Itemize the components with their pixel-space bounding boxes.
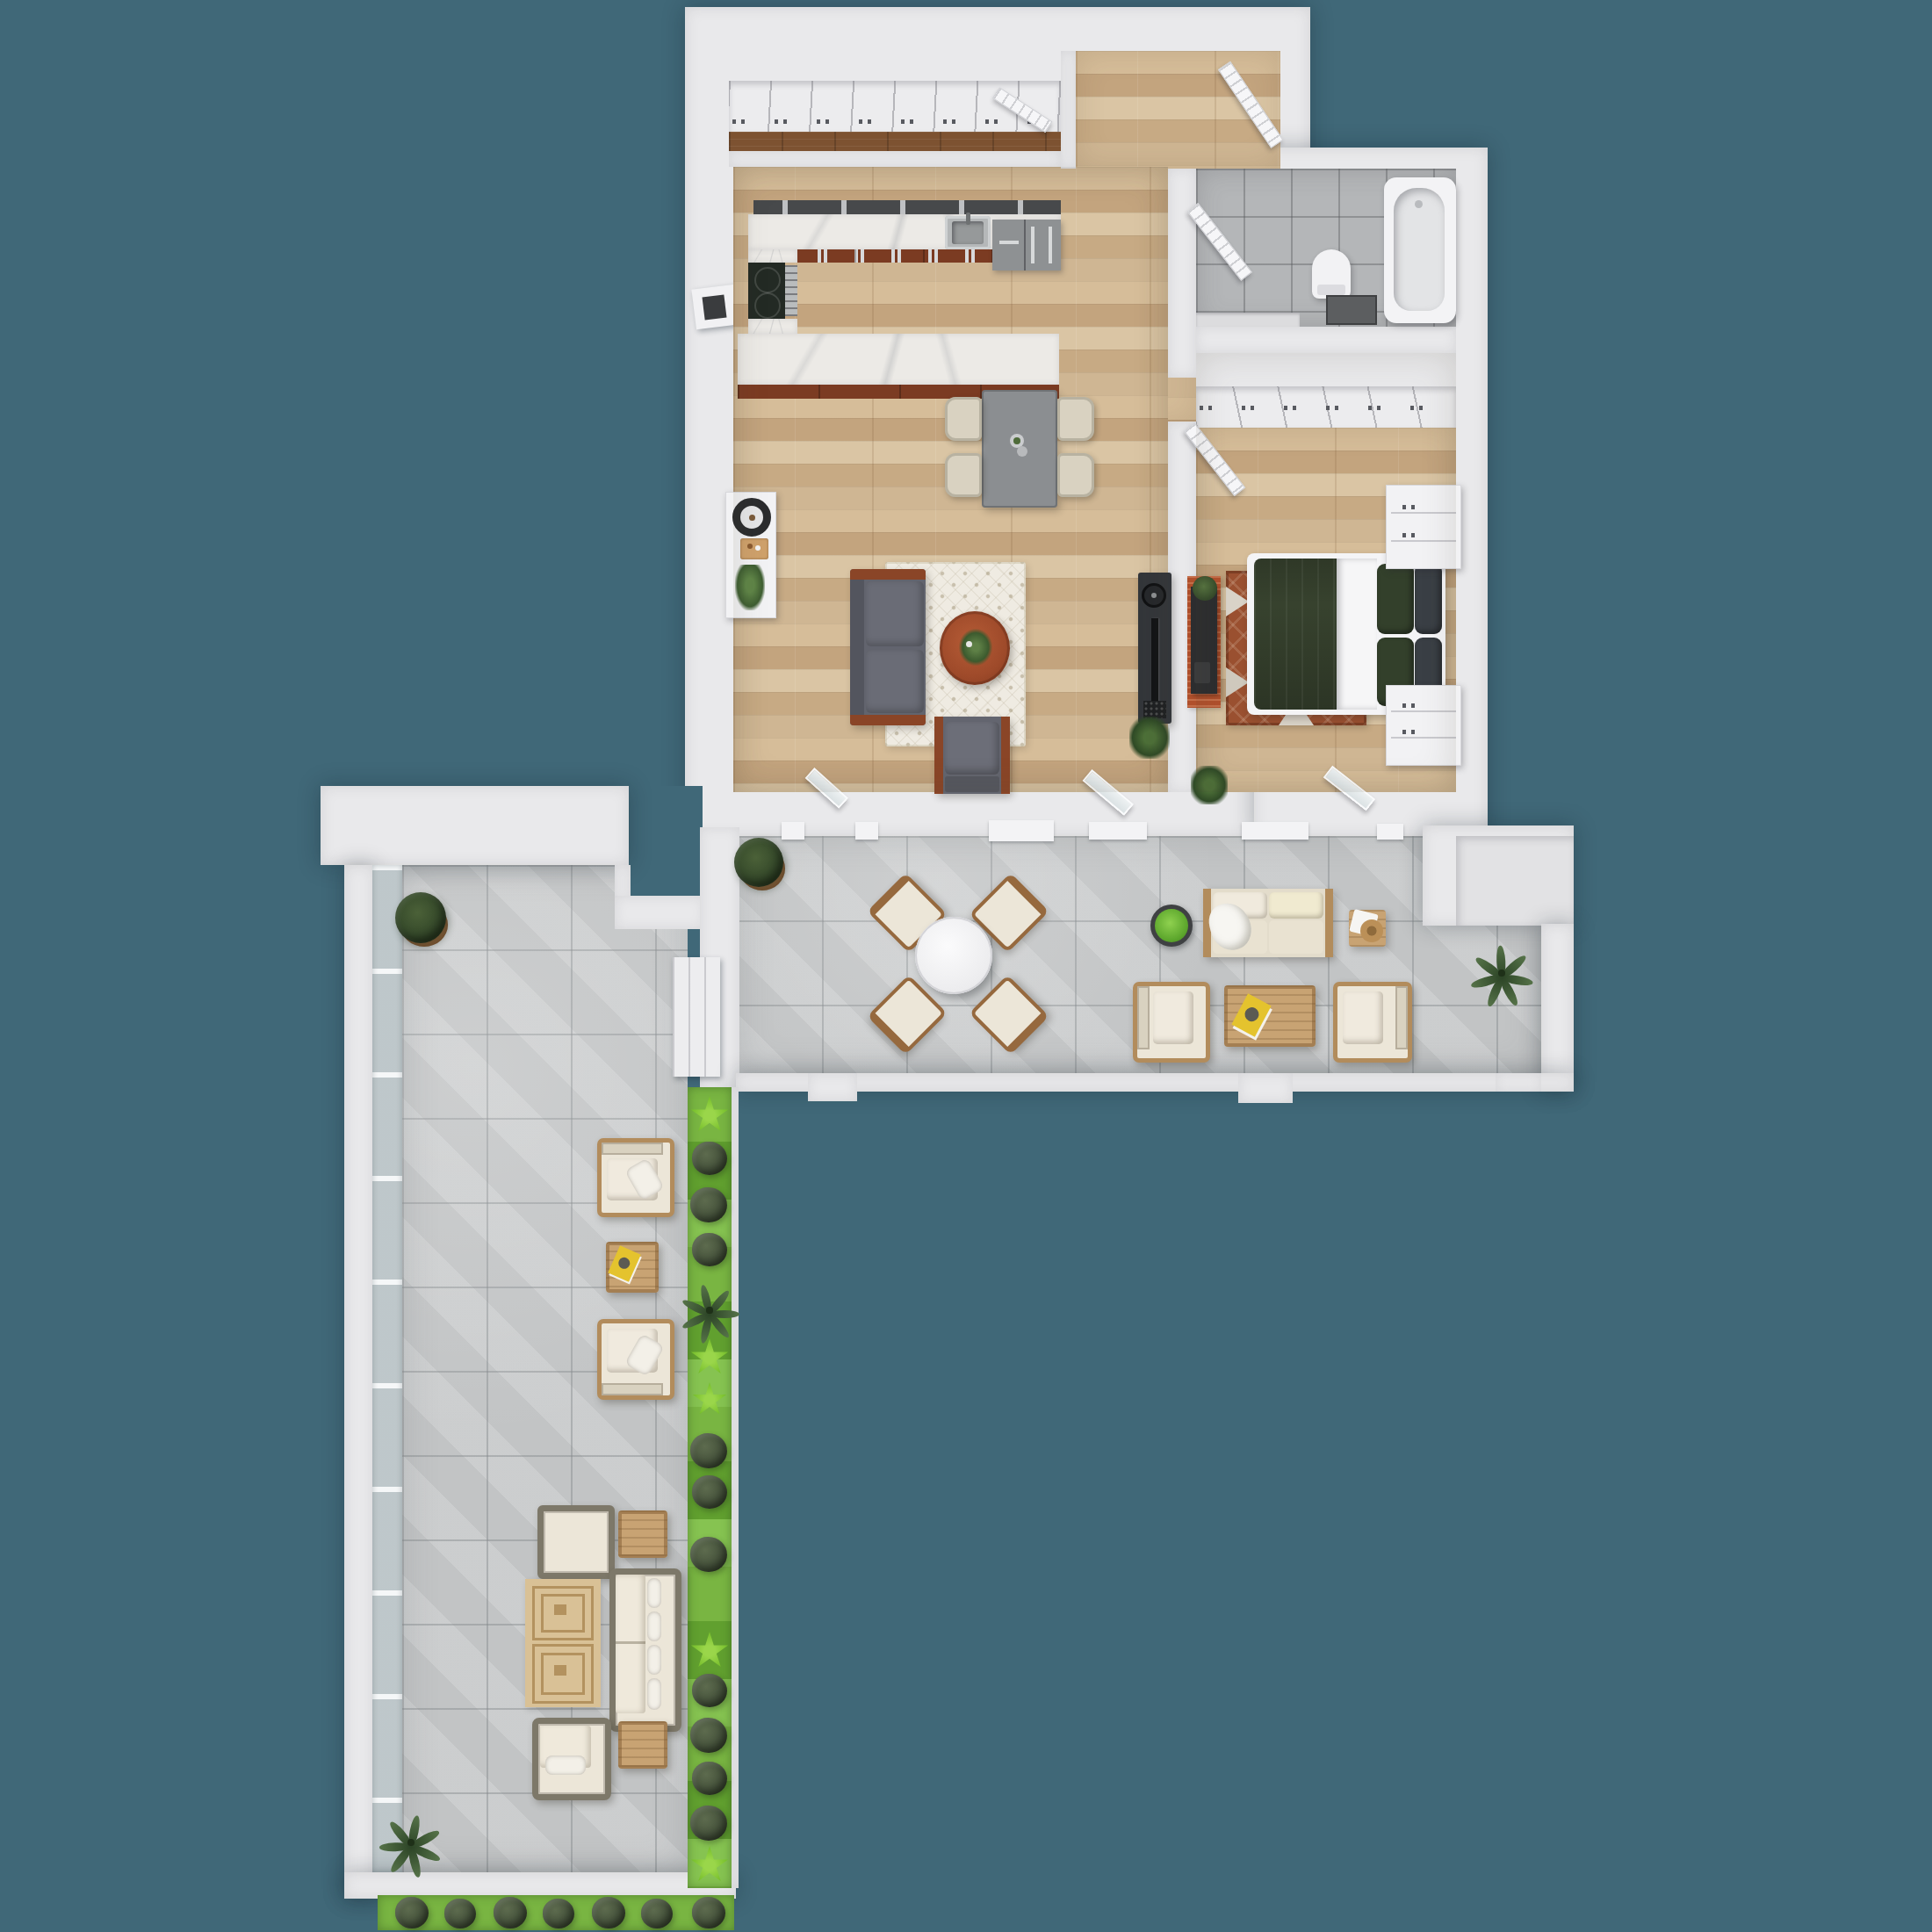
door-threshold bbox=[1089, 822, 1147, 840]
shrub bbox=[592, 1897, 625, 1928]
dining-chair bbox=[1057, 397, 1094, 441]
console-plant bbox=[735, 565, 765, 610]
toilet bbox=[1312, 249, 1351, 299]
dining-chair bbox=[945, 453, 982, 497]
plant-by-tv bbox=[1129, 717, 1170, 759]
bedroom-closet-handles bbox=[1200, 406, 1453, 410]
shrub bbox=[641, 1899, 673, 1928]
armchair bbox=[934, 717, 1010, 794]
ottoman bbox=[537, 1505, 615, 1579]
refrigerator bbox=[992, 220, 1061, 270]
shrub bbox=[690, 1433, 727, 1468]
bed-sheet-fold bbox=[1337, 559, 1377, 710]
wing-armchair bbox=[597, 1319, 674, 1400]
speaker bbox=[1143, 701, 1166, 718]
bath-vanity bbox=[1326, 295, 1377, 325]
divider-planter-box bbox=[673, 957, 720, 1077]
door-threshold bbox=[1242, 822, 1308, 840]
wall-bath-bedroom bbox=[1196, 327, 1456, 353]
dining-chair bbox=[945, 397, 982, 441]
palm-plant bbox=[1474, 945, 1530, 1001]
bed-pillow bbox=[1415, 564, 1442, 634]
door-threshold bbox=[782, 822, 804, 840]
shrub bbox=[690, 1187, 727, 1222]
palm-plant bbox=[383, 1814, 439, 1871]
tv-stand bbox=[1138, 573, 1171, 724]
wardrobe-floor bbox=[729, 132, 1061, 151]
shrub bbox=[395, 1897, 429, 1928]
faucet bbox=[966, 213, 970, 225]
wing-side-table bbox=[606, 1242, 659, 1293]
fern-plant bbox=[683, 1284, 736, 1337]
terrace-bottom-parapet bbox=[736, 1073, 1574, 1092]
coffee-table-plant bbox=[959, 629, 992, 666]
door-threshold bbox=[855, 822, 878, 840]
wing-balustrade-glass bbox=[372, 865, 402, 1872]
coffee-table bbox=[940, 611, 1010, 685]
bed-duvet bbox=[1254, 559, 1337, 710]
wardrobe-corridor bbox=[729, 81, 1061, 151]
outdoor-sofa bbox=[1203, 889, 1333, 957]
outdoor-coffee-table bbox=[1224, 985, 1316, 1047]
shrub bbox=[543, 1899, 574, 1928]
magazine bbox=[608, 1245, 641, 1282]
bedroom-plant bbox=[1191, 766, 1228, 804]
dresser-nightstand bbox=[1386, 685, 1461, 766]
wing-connector-band bbox=[615, 896, 704, 929]
wing-top-parapet bbox=[321, 786, 629, 865]
parapet-step bbox=[1238, 1073, 1293, 1103]
tv-screen bbox=[1151, 618, 1158, 706]
shrub bbox=[692, 1142, 727, 1175]
console-tray bbox=[740, 538, 768, 559]
dining-table bbox=[982, 390, 1057, 508]
kitchen-sink bbox=[945, 216, 991, 249]
oven-front bbox=[785, 265, 797, 316]
shrub bbox=[692, 1674, 727, 1707]
wing-side-table bbox=[618, 1721, 667, 1769]
door-threshold bbox=[1377, 824, 1403, 840]
kitchen-backsplash bbox=[753, 200, 1061, 214]
shrub bbox=[690, 1537, 727, 1572]
boxwood-bush bbox=[734, 838, 783, 887]
kitchen-left-counter bbox=[748, 249, 797, 334]
terrace-planter-pot bbox=[1150, 905, 1193, 947]
wicker-sofa bbox=[609, 1568, 681, 1732]
shrub bbox=[692, 1762, 727, 1795]
dining-chair bbox=[1057, 453, 1094, 497]
terrace-right-parapet bbox=[1541, 924, 1574, 1092]
console-table bbox=[725, 492, 776, 618]
remote bbox=[1194, 662, 1210, 683]
outdoor-armchair bbox=[1133, 982, 1210, 1063]
bathtub bbox=[1384, 177, 1456, 323]
dresser-nightstand bbox=[1386, 485, 1461, 569]
terrace-dining-table bbox=[915, 917, 992, 994]
neighbor-structure-inner bbox=[1456, 836, 1574, 926]
wing-armchair bbox=[597, 1138, 674, 1217]
boxwood-bush bbox=[395, 892, 446, 943]
shrub bbox=[692, 1475, 727, 1509]
door-threshold bbox=[989, 820, 1054, 841]
cooktop bbox=[748, 263, 785, 319]
bed-pillow bbox=[1377, 564, 1414, 634]
shrub bbox=[690, 1718, 727, 1753]
sofa bbox=[850, 569, 926, 725]
wall-closet-bottom bbox=[729, 151, 1061, 167]
planter-strip-edge bbox=[732, 1087, 739, 1888]
shrub bbox=[444, 1899, 476, 1928]
shrub bbox=[692, 1897, 725, 1928]
sun-hat bbox=[1360, 919, 1383, 942]
bedroom-closet-top bbox=[1196, 353, 1456, 386]
terrace-notch bbox=[625, 786, 703, 898]
wardrobe-handles bbox=[732, 119, 1057, 124]
wing-balustrade-frame bbox=[344, 865, 374, 1899]
wall-closet-right bbox=[1061, 51, 1076, 169]
bath-counter bbox=[1196, 313, 1300, 327]
parapet-step bbox=[1496, 1073, 1541, 1092]
parapet-step bbox=[808, 1073, 857, 1101]
outdoor-rug bbox=[525, 1579, 601, 1707]
shrub bbox=[494, 1897, 527, 1928]
wall-corridor-bath bbox=[1168, 169, 1196, 378]
floor-plan-canvas bbox=[0, 0, 1932, 1932]
kitchen-bar-counter bbox=[738, 334, 1059, 385]
shrub bbox=[692, 1233, 727, 1266]
console-plant-pot bbox=[1193, 576, 1217, 601]
wing-side-table bbox=[618, 1510, 667, 1558]
wall-vent-opening bbox=[703, 295, 727, 321]
magazine bbox=[1231, 993, 1271, 1036]
shrub bbox=[690, 1806, 727, 1841]
wicker-armchair bbox=[532, 1718, 611, 1800]
outdoor-armchair bbox=[1333, 982, 1412, 1063]
side-table bbox=[1349, 910, 1386, 947]
